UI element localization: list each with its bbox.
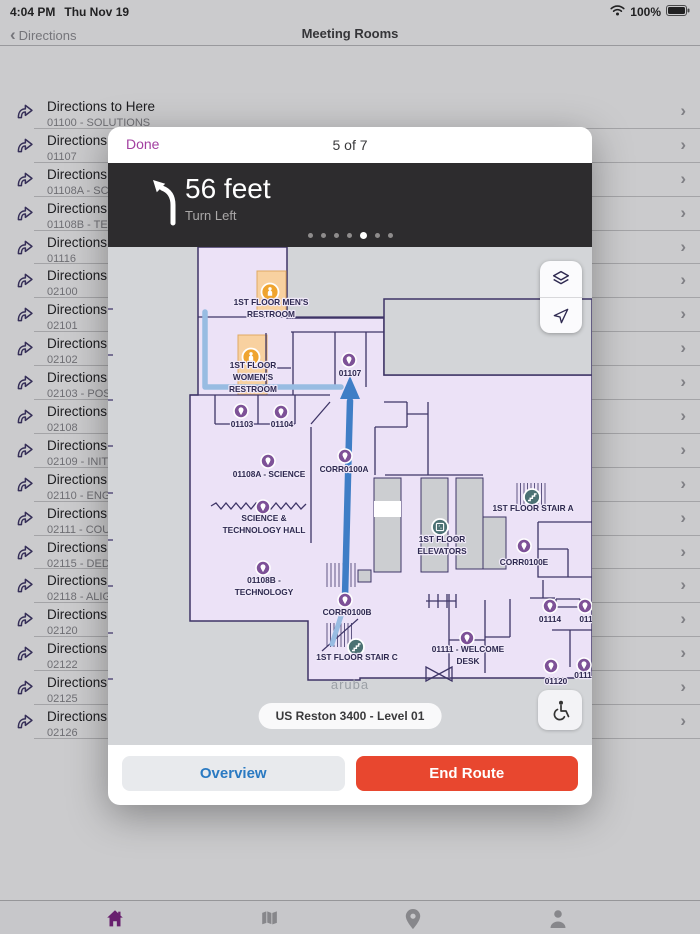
end-route-button[interactable]: End Route [356, 756, 579, 791]
map-label: ELEVATORS [417, 546, 467, 556]
map-label: TECHNOLOGY HALL [223, 525, 306, 535]
page-dot [321, 233, 326, 238]
page-dot [388, 233, 393, 238]
map-label: RESTROOM [247, 309, 295, 319]
map-label: DESK [456, 656, 479, 666]
page-dot [334, 233, 339, 238]
map-label: 01108B - [247, 575, 281, 585]
map-label: 01104 [271, 419, 294, 429]
map-viewport[interactable]: 1ST FLOOR MEN'SRESTROOM1ST FLOORWOMEN'SR… [108, 247, 592, 745]
map-label: 01111 - WELCOME [432, 644, 505, 654]
navigation-icon [551, 306, 571, 326]
map-label: 0111 [574, 670, 592, 680]
map-label: CORR0100E [500, 557, 549, 567]
instruction-banner: 56 feet Turn Left [108, 163, 592, 247]
map-label: 1ST FLOOR STAIR C [316, 652, 397, 662]
screen: 4:04 PM Thu Nov 19 100% ‹ Directions Mee… [0, 0, 700, 934]
aruba-watermark: aruba [331, 677, 369, 692]
floor-label: US Reston 3400 - Level 01 [259, 703, 442, 729]
page-dots [108, 232, 592, 239]
map-label: 01120 [545, 676, 568, 686]
map-marker-room[interactable]: 011 [578, 599, 592, 624]
page-dot [347, 233, 352, 238]
map-label: 1ST FLOOR [419, 534, 466, 544]
page-dot [308, 233, 313, 238]
page-dot [360, 232, 367, 239]
map-label: 01108A - SCIENCE [233, 469, 306, 479]
step-counter: 5 of 7 [108, 137, 592, 153]
floorplan-svg: 1ST FLOOR MEN'SRESTROOM1ST FLOORWOMEN'SR… [108, 247, 592, 745]
map-label: 01107 [339, 368, 362, 378]
map-label: TECHNOLOGY [235, 587, 294, 597]
turn-left-arrow-icon [145, 175, 181, 232]
modal-header: Done 5 of 7 [108, 127, 592, 163]
map-label: 011 [579, 614, 592, 624]
overview-button[interactable]: Overview [122, 756, 345, 791]
map-controls [540, 261, 582, 333]
map-label: CORR0100A [320, 464, 369, 474]
map-label: 1ST FLOOR STAIR A [492, 503, 573, 513]
layers-button[interactable] [540, 261, 582, 297]
map-label: 01114 [539, 614, 562, 624]
map-label: 01103 [231, 419, 254, 429]
map-label: RESTROOM [229, 384, 277, 394]
wheelchair-icon [551, 700, 570, 721]
map-label: WOMEN'S [233, 372, 274, 382]
map-label: SCIENCE & [241, 513, 286, 523]
instruction-action: Turn Left [185, 208, 271, 223]
map-label: 1ST FLOOR [230, 360, 277, 370]
map-label: 1ST FLOOR MEN'S [234, 297, 309, 307]
layers-icon [550, 268, 572, 290]
page-dot [375, 233, 380, 238]
instruction-distance: 56 feet [185, 173, 271, 205]
directions-modal: Done 5 of 7 56 feet Turn Left [108, 127, 592, 805]
locate-button[interactable] [540, 297, 582, 333]
map-label: CORR0100B [323, 607, 372, 617]
accessibility-button[interactable] [538, 690, 582, 730]
modal-footer: Overview End Route [108, 745, 592, 791]
